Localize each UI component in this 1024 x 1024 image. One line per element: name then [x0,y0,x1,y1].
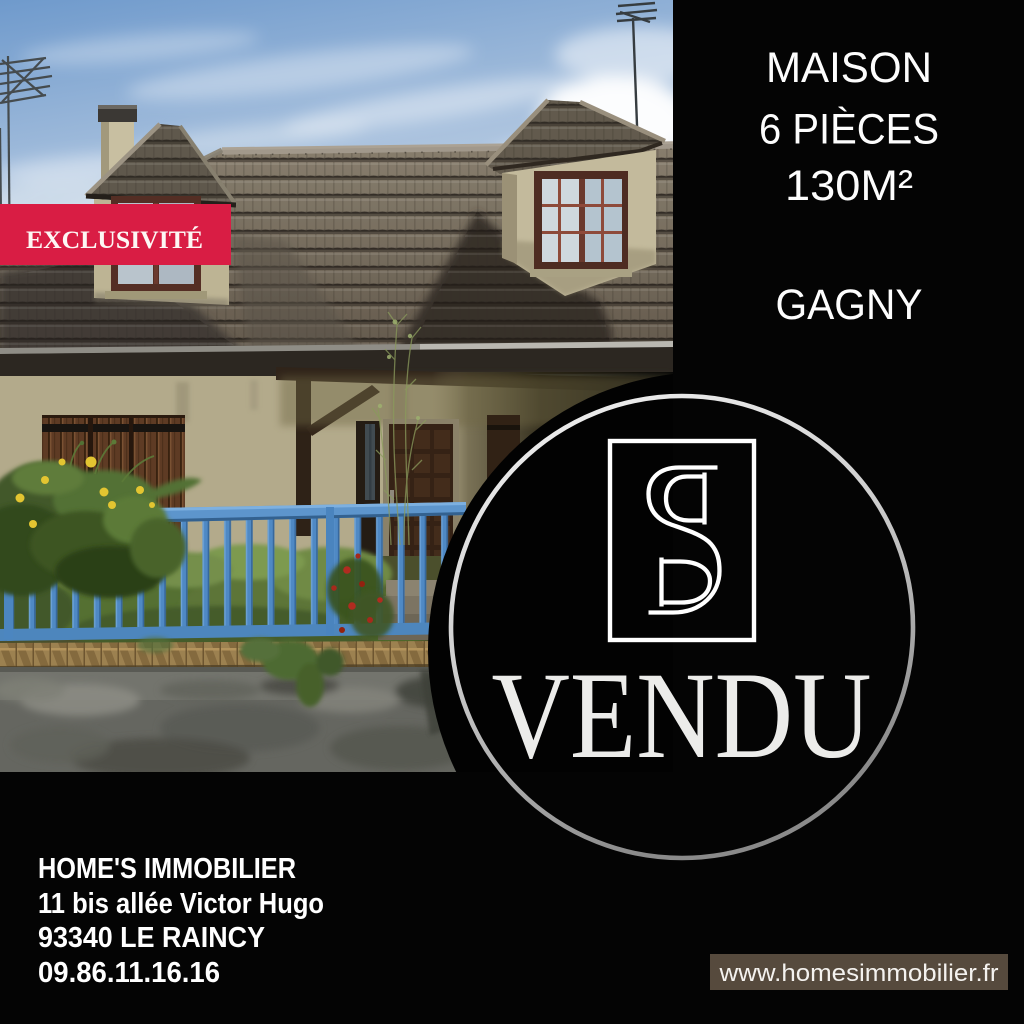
svg-text:VENDU: VENDU [492,647,872,784]
svg-text:www.homesimmobilier.fr: www.homesimmobilier.fr [718,960,998,987]
svg-text:93340 LE RAINCY: 93340 LE RAINCY [38,922,265,954]
svg-text:6 PIÈCES: 6 PIÈCES [759,106,939,154]
svg-text:130M²: 130M² [785,162,913,210]
svg-text:MAISON: MAISON [766,44,932,92]
svg-text:GAGNY: GAGNY [776,281,923,329]
svg-text:09.86.11.16.16: 09.86.11.16.16 [38,957,220,989]
svg-text:11 bis allée Victor Hugo: 11 bis allée Victor Hugo [38,888,324,920]
svg-text:HOME'S IMMOBILIER: HOME'S IMMOBILIER [38,853,296,885]
svg-text:EXCLUSIVITÉ: EXCLUSIVITÉ [26,225,203,254]
